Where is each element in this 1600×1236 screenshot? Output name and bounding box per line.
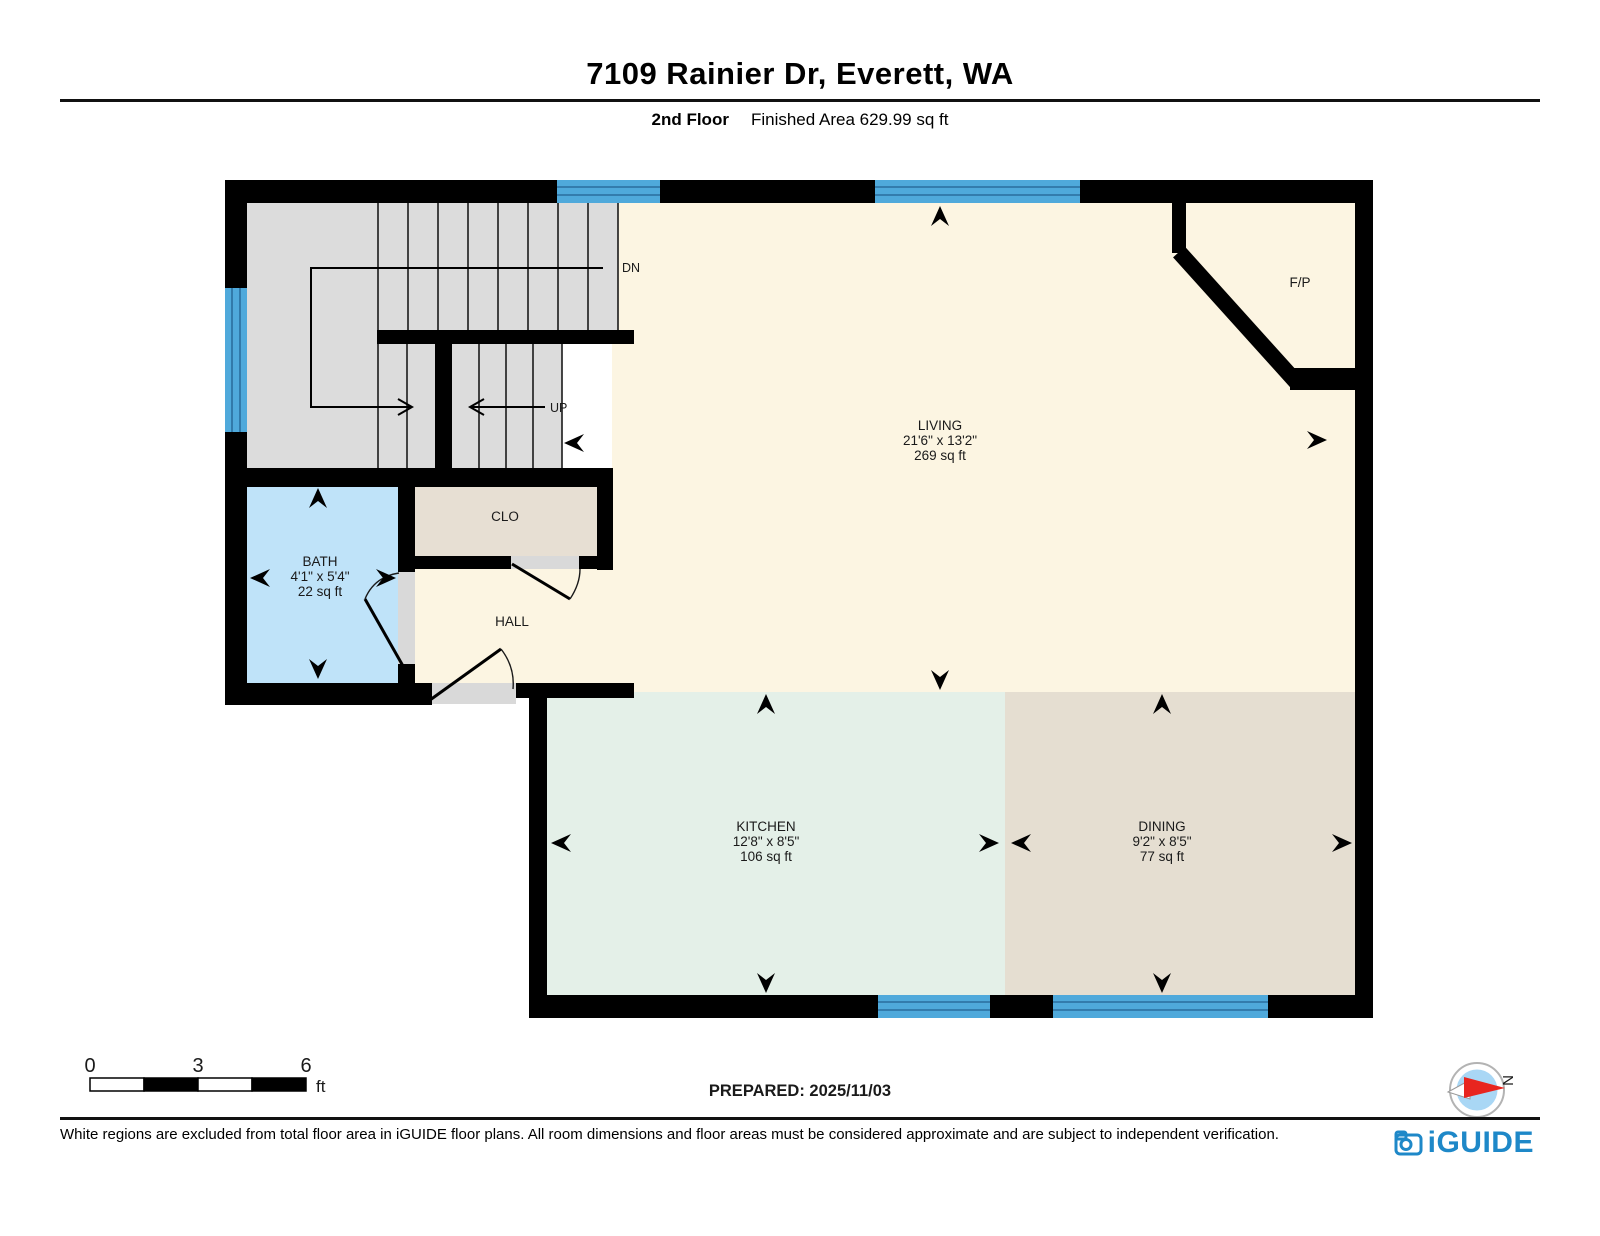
compass-north-label: N [1499, 1075, 1516, 1086]
window-bottom-left [878, 995, 990, 1018]
disclaimer-text: White regions are excluded from total fl… [60, 1126, 1360, 1143]
wall-top [225, 180, 1373, 203]
stairs-down-label: DN [622, 261, 640, 275]
wall-stairs-mid [377, 330, 634, 344]
dining-label: DINING [1138, 819, 1185, 834]
bath-door-opening [398, 572, 415, 664]
kitchen-label: KITCHEN [736, 819, 795, 834]
wall-right [1355, 180, 1373, 1018]
dining-dims: 9'2" x 8'5" [1132, 834, 1191, 849]
wall-bath-right-upper [398, 468, 415, 572]
wall-kitchen-left [529, 683, 547, 1018]
stairs-upper-floor [247, 203, 618, 330]
floor-plan: LIVING 21'6" x 13'2" 269 sq ft KITCHEN 1… [0, 0, 1600, 1236]
wall-bath-right-lower [398, 664, 415, 705]
living-label: LIVING [918, 418, 962, 433]
living-area: 269 sq ft [914, 448, 966, 463]
scale-bar: 0 3 6 ft [84, 1055, 325, 1096]
dining-area: 77 sq ft [1140, 849, 1185, 864]
window-left [225, 288, 247, 432]
scale-tick-0: 0 [84, 1055, 95, 1077]
footer-divider [60, 1117, 1540, 1120]
window-top-right [875, 180, 1080, 203]
scale-tick-6: 6 [300, 1055, 311, 1077]
wall-stair-divider [435, 344, 452, 468]
wall-stairs-bottom [225, 468, 613, 487]
living-arrow-left [564, 434, 584, 452]
window-top-left [557, 180, 660, 203]
fireplace-label: F/P [1289, 275, 1310, 290]
scale-unit: ft [316, 1077, 326, 1096]
kitchen-area: 106 sq ft [740, 849, 792, 864]
iguide-logo: iGUIDE [1393, 1126, 1534, 1160]
prepared-date: PREPARED: 2025/11/03 [709, 1082, 891, 1100]
hall-label: HALL [495, 614, 529, 629]
scale-tick-3: 3 [192, 1055, 203, 1077]
closet-label: CLO [491, 509, 519, 524]
kitchen-dims: 12'8" x 8'5" [733, 834, 800, 849]
bath-label: BATH [302, 554, 337, 569]
stairs-up-label: UP [550, 401, 567, 415]
wall-left [225, 180, 247, 705]
bath-area: 22 sq ft [298, 584, 343, 599]
window-bottom-right [1053, 995, 1268, 1018]
living-floor [612, 203, 1355, 692]
compass-icon: N [1448, 1063, 1516, 1117]
wall-closet-right [597, 468, 613, 570]
iguide-logo-text: iGUIDE [1428, 1126, 1534, 1160]
hall-door-opening [432, 683, 516, 704]
wall-fireplace-stub [1172, 203, 1186, 253]
closet-door-opening [511, 556, 579, 569]
bath-dims: 4'1" x 5'4" [290, 569, 349, 584]
wall-closet-bottom-right [579, 556, 597, 569]
living-dims: 21'6" x 13'2" [903, 433, 977, 448]
iguide-logo-icon [1393, 1128, 1424, 1159]
